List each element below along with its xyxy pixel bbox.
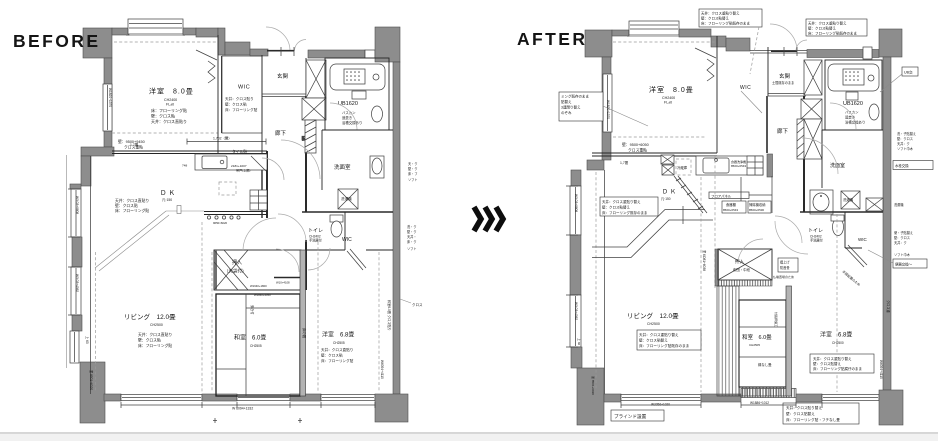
svg-text:床：フローリング貼: 床：フローリング貼 bbox=[151, 107, 187, 113]
svg-text:追焚き: 追焚き bbox=[342, 115, 352, 120]
svg-text:CH2505: CH2505 bbox=[749, 343, 760, 347]
svg-text:洗・子貼替え: 洗・子貼替え bbox=[897, 131, 916, 136]
svg-text:ソフト巾木: ソフト巾木 bbox=[894, 252, 911, 257]
svg-text:MB: MB bbox=[301, 136, 305, 141]
svg-text:洋室 6.8畳: 洋室 6.8畳 bbox=[820, 331, 852, 339]
svg-text:天井：クロス重貼り替え: 天井：クロス重貼り替え bbox=[701, 11, 740, 16]
svg-text:8500+6530: 8500+6530 bbox=[749, 208, 764, 212]
svg-text:床・ク: 床・ク bbox=[407, 239, 417, 244]
svg-text:仏壇置場のため: 仏壇置場のため bbox=[773, 274, 794, 279]
svg-text:CH2500: CH2500 bbox=[832, 341, 844, 345]
svg-text:和室 6.0畳: 和室 6.0畳 bbox=[234, 334, 266, 342]
svg-text:壁：クロス: 壁：クロス bbox=[894, 235, 910, 240]
svg-text:玄関: 玄関 bbox=[277, 72, 289, 80]
svg-text:1,702（開）: 1,702（開） bbox=[213, 136, 232, 141]
svg-text:壁・ク: 壁・ク bbox=[407, 229, 417, 234]
svg-text:バスカン: バスカン bbox=[845, 110, 859, 115]
svg-text:W6094+4110: W6094+4110 bbox=[879, 360, 883, 379]
svg-text:9650×6020: 9650×6020 bbox=[213, 221, 228, 225]
svg-text:床：フローリング貼: 床：フローリング貼 bbox=[225, 107, 258, 112]
svg-text:WIC: WIC bbox=[342, 237, 352, 243]
svg-text:壁：クロス貼替え: 壁：クロス貼替え bbox=[813, 361, 841, 366]
svg-text:押入: 押入 bbox=[232, 259, 242, 266]
svg-text:W3.03+4062: W3.03+4062 bbox=[75, 274, 79, 292]
svg-text:ブラインド設置: ブラインド設置 bbox=[614, 413, 647, 420]
svg-text:天井：クロス直貼り: 天井：クロス直貼り bbox=[151, 118, 187, 124]
svg-text:3連閉り替え: 3連閉り替え bbox=[561, 105, 581, 110]
svg-text:天井：ク: 天井：ク bbox=[894, 240, 907, 245]
svg-text:ソフト: ソフト bbox=[407, 246, 417, 251]
svg-text:廊下: 廊下 bbox=[777, 127, 789, 135]
svg-text:床：フローリング貼腐仔のまま: 床：フローリング貼腐仔のまま bbox=[813, 366, 862, 371]
svg-text:W1640+1800: W1640+1800 bbox=[250, 284, 267, 288]
svg-text:塗 8501+6020: 塗 8501+6020 bbox=[89, 370, 94, 390]
svg-text:床：フローリング貼: 床：フローリング貼 bbox=[115, 208, 149, 213]
svg-text:1,7間: 1,7間 bbox=[130, 142, 139, 147]
svg-text:洗・ク: 洗・ク bbox=[407, 224, 417, 229]
svg-text:床：フローリング貼: 床：フローリング貼 bbox=[138, 343, 172, 348]
svg-text:壁：クロス貼: 壁：クロス貼 bbox=[321, 353, 343, 358]
svg-text:天井：クロス貼り替え: 天井：クロス貼り替え bbox=[786, 405, 822, 410]
svg-text:のぞみ: のぞみ bbox=[561, 110, 572, 115]
svg-text:床：フローリング既存のまま: 床：フローリング既存のまま bbox=[602, 210, 648, 215]
svg-text:W1820+1370: W1820+1370 bbox=[108, 88, 112, 107]
svg-text:洋室 8.0畳: 洋室 8.0畳 bbox=[649, 85, 694, 94]
svg-text:W1820+1370: W1820+1370 bbox=[606, 100, 610, 119]
svg-text:天井：クロス重貼り替え: 天井：クロス重貼り替え bbox=[813, 356, 852, 361]
svg-text:床：フローリング貼・フチなし畳: 床：フローリング貼・フチなし畳 bbox=[786, 417, 840, 422]
svg-text:塗 8501+6020: 塗 8501+6020 bbox=[591, 376, 596, 395]
svg-text:浴槽交換あり: 浴槽交換あり bbox=[342, 120, 362, 125]
svg-text:ＤＫ: ＤＫ bbox=[662, 189, 678, 196]
svg-text:水栓交換: 水栓交換 bbox=[895, 163, 909, 168]
svg-text:洗濯機: 洗濯機 bbox=[894, 202, 904, 207]
svg-text:洗面室: 洗面室 bbox=[334, 163, 351, 171]
svg-text:上 60: 上 60 bbox=[577, 338, 582, 346]
svg-text:CH2400: CH2400 bbox=[164, 98, 177, 102]
svg-text:ＤＫ: ＤＫ bbox=[160, 190, 177, 197]
svg-text:クロス重: クロス重 bbox=[886, 300, 891, 314]
svg-text:床の間: 床の間 bbox=[302, 328, 307, 339]
svg-text:W3.03+9808: W3.03+9808 bbox=[574, 194, 578, 212]
svg-text:凡·150: 凡·150 bbox=[162, 198, 172, 202]
svg-text:W1840+4050: W1840+4050 bbox=[254, 293, 271, 297]
svg-text:食器棚: 食器棚 bbox=[726, 202, 737, 207]
svg-text:床・フ: 床・フ bbox=[408, 171, 418, 176]
svg-text:床き付: 床き付 bbox=[250, 305, 255, 315]
svg-text:上 60: 上 60 bbox=[85, 336, 90, 344]
svg-text:便・子貼替え: 便・子貼替え bbox=[894, 230, 913, 235]
svg-text:FL±0: FL±0 bbox=[166, 103, 174, 107]
svg-text:W 6094+1332: W 6094+1332 bbox=[232, 407, 253, 411]
svg-text:凡·150: 凡·150 bbox=[661, 197, 671, 201]
svg-text:天井：クロス直貼り: 天井：クロス直貼り bbox=[115, 198, 149, 203]
svg-text:壁：クロス貼替え: 壁：クロス貼替え bbox=[786, 411, 815, 416]
svg-text:FL±0: FL±0 bbox=[664, 101, 672, 105]
svg-text:トイレ: トイレ bbox=[808, 228, 823, 234]
svg-text:UB1620: UB1620 bbox=[338, 101, 358, 107]
svg-text:掃除機収納: 掃除機収納 bbox=[749, 202, 766, 207]
svg-text:タイル貼: タイル貼 bbox=[232, 149, 247, 154]
svg-text:ソフト: ソフト bbox=[408, 177, 418, 182]
svg-text:縁なし畳: 縁なし畳 bbox=[758, 362, 772, 367]
svg-text:壁：クロス: 壁：クロス bbox=[897, 136, 913, 141]
svg-text:床：フローリング貼既存のまま: 床：フローリング貼既存のまま bbox=[808, 31, 857, 36]
svg-text:冷蔵庫: 冷蔵庫 bbox=[677, 165, 688, 170]
svg-text:W6094+4110: W6094+4110 bbox=[380, 360, 384, 379]
svg-text:UB交: UB交 bbox=[904, 70, 913, 75]
svg-text:AFTER: AFTER bbox=[517, 29, 585, 49]
svg-text:壁：クロス貼替え: 壁：クロス貼替え bbox=[701, 16, 729, 21]
svg-text:CH2505: CH2505 bbox=[250, 344, 262, 348]
svg-text:天井：クロス重貼り替え: 天井：クロス重貼り替え bbox=[602, 199, 641, 204]
svg-text:壁：クロス貼替え: 壁：クロス貼替え bbox=[639, 338, 668, 343]
svg-text:天井：クロス重貼り替え: 天井：クロス重貼り替え bbox=[808, 21, 847, 26]
svg-text:W1886+1012: W1886+1012 bbox=[750, 401, 769, 405]
svg-text:WIC: WIC bbox=[858, 237, 867, 242]
svg-text:壁：クロス貼: 壁：クロス貼 bbox=[151, 113, 175, 119]
svg-text:和室 6.0畳: 和室 6.0畳 bbox=[742, 333, 772, 341]
svg-text:1,7間: 1,7間 bbox=[620, 160, 629, 165]
svg-text:壁：クロス貼: 壁：クロス貼 bbox=[138, 338, 161, 343]
svg-text:床：フローリング貼既存のまま: 床：フローリング貼既存のまま bbox=[701, 21, 750, 26]
svg-text:天井：クロス貼り: 天井：クロス貼り bbox=[225, 96, 254, 101]
svg-text:洋室 6.8畳: 洋室 6.8畳 bbox=[322, 331, 354, 339]
svg-text:（天袋付）: （天袋付） bbox=[224, 268, 247, 275]
svg-text:防音畳: 防音畳 bbox=[780, 265, 790, 270]
svg-text:廊下: 廊下 bbox=[275, 129, 287, 137]
svg-text:手洗器付: 手洗器付 bbox=[810, 238, 824, 243]
svg-text:便器交換～: 便器交換～ bbox=[895, 262, 913, 267]
svg-text:和室6.0畳 クロス貼り: 和室6.0畳 クロス貼り bbox=[387, 300, 392, 331]
svg-text:リビング 12.0畳: リビング 12.0畳 bbox=[124, 312, 176, 321]
svg-text:8500+6543: 8500+6543 bbox=[723, 208, 738, 212]
svg-text:天井：クロス重貼り替え: 天井：クロス重貼り替え bbox=[639, 332, 679, 337]
svg-text:壁：クロス貼替え: 壁：クロス貼替え bbox=[602, 205, 630, 210]
svg-text:天井・: 天井・ bbox=[407, 234, 417, 239]
svg-text:洗濯機: 洗濯機 bbox=[843, 197, 854, 202]
svg-text:トイレ: トイレ bbox=[308, 228, 323, 234]
svg-text:リビング 12.0畳: リビング 12.0畳 bbox=[627, 311, 679, 320]
svg-text:洋室 8.0畳: 洋室 8.0畳 bbox=[149, 87, 194, 96]
svg-text:CH2505: CH2505 bbox=[333, 341, 345, 345]
svg-text:手洗器付: 手洗器付 bbox=[309, 238, 323, 243]
svg-text:付長押施工: 付長押施工 bbox=[774, 312, 779, 327]
svg-text:WIC: WIC bbox=[740, 85, 751, 91]
svg-text:W3.03+4062: W3.03+4062 bbox=[574, 302, 578, 320]
svg-text:壁：9500+6050: 壁：9500+6050 bbox=[622, 142, 649, 147]
svg-text:天井：クロス直貼り: 天井：クロス直貼り bbox=[321, 347, 353, 352]
svg-text:8500+6543: 8500+6543 bbox=[731, 164, 746, 168]
svg-text:押入: 押入 bbox=[735, 258, 744, 265]
svg-text:UB1620: UB1620 bbox=[843, 101, 863, 107]
svg-text:クロス: クロス bbox=[412, 302, 423, 307]
svg-text:摺上げ: 摺上げ bbox=[780, 260, 790, 265]
svg-text:天井：クロス直貼り: 天井：クロス直貼り bbox=[138, 332, 172, 337]
svg-text:壁：クロス貼: 壁：クロス貼 bbox=[115, 203, 138, 208]
svg-text:ソフト巾木: ソフト巾木 bbox=[897, 146, 914, 151]
svg-text:貼替え: 貼替え bbox=[561, 99, 572, 104]
svg-text:クロス重貼: クロス重貼 bbox=[628, 148, 647, 153]
svg-text:W2056+1020: W2056+1020 bbox=[651, 403, 670, 407]
svg-text:布団・中段: 布団・中段 bbox=[733, 267, 751, 272]
svg-text:W10+4108: W10+4108 bbox=[276, 281, 290, 285]
svg-text:玄関: 玄関 bbox=[779, 72, 791, 80]
svg-text:フロアパネル: フロアパネル bbox=[711, 193, 732, 198]
svg-text:ミング既存のまま: ミング既存のまま bbox=[561, 94, 589, 99]
svg-text:2181+1007: 2181+1007 bbox=[231, 164, 247, 168]
svg-text:CH2500: CH2500 bbox=[647, 322, 660, 326]
svg-text:CH2500: CH2500 bbox=[150, 323, 163, 327]
svg-text:748: 748 bbox=[182, 164, 187, 168]
svg-text:洗濯機: 洗濯機 bbox=[341, 196, 352, 201]
svg-text:壁・ク: 壁・ク bbox=[408, 166, 418, 171]
svg-text:吊戸(上部): 吊戸(上部) bbox=[236, 168, 250, 173]
svg-text:W3.03+9808: W3.03+9808 bbox=[75, 196, 79, 214]
svg-text:天井：ク: 天井：ク bbox=[897, 141, 910, 146]
svg-text:土間既存のまま: 土間既存のまま bbox=[772, 80, 794, 85]
svg-text:床：フローリング貼: 床：フローリング貼 bbox=[321, 358, 354, 363]
svg-text:壁：クロス貼: 壁：クロス貼 bbox=[225, 102, 247, 107]
svg-text:WIC: WIC bbox=[238, 85, 250, 91]
svg-text:塗 KD81+6038: 塗 KD81+6038 bbox=[702, 250, 707, 271]
svg-text:壁：クロス貼替え: 壁：クロス貼替え bbox=[808, 26, 836, 31]
svg-text:天・ク: 天・ク bbox=[408, 161, 418, 166]
svg-text:床：フローリング貼既存のまま: 床：フローリング貼既存のまま bbox=[639, 343, 690, 348]
svg-text:CH2400: CH2400 bbox=[662, 96, 675, 100]
